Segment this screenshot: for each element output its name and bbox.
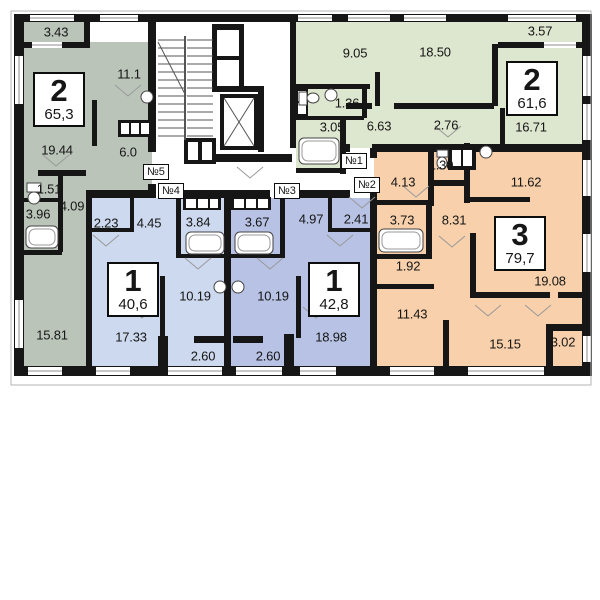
room-area-label: 3.84 (186, 215, 211, 230)
apartment-total-area: 65,3 (44, 106, 73, 123)
apartment-rooms-count: 2 (523, 66, 540, 95)
room-area-label: 3.57 (528, 24, 553, 39)
room-area-label: 16.71 (515, 120, 547, 135)
entrance-tag: №5 (143, 164, 169, 180)
room-area-label: 2.41 (344, 212, 369, 227)
room-area-label: 1.36 (335, 96, 360, 111)
apartment-badge: 1 40,6 (107, 262, 159, 317)
room-area-label: 4.13 (391, 175, 416, 190)
apartment-total-area: 42,8 (319, 296, 348, 313)
room-area-label: 15.81 (36, 328, 68, 343)
room-area-label: 17.33 (115, 330, 147, 345)
room-area-label: 2.23 (94, 216, 119, 231)
room-area-label: 3.43 (44, 25, 69, 40)
apartment-rooms-count: 2 (50, 77, 67, 106)
room-area-label: 18.50 (419, 45, 451, 60)
room-area-label: 4.97 (299, 212, 324, 227)
room-area-label: 1.51 (37, 182, 62, 197)
apartment-badge: 3 79,7 (494, 216, 546, 271)
room-area-label: 3.02 (551, 335, 576, 350)
apartment-total-area: 61,6 (517, 95, 546, 112)
room-area-label: 10.19 (179, 289, 211, 304)
room-area-label: 1.30 (429, 158, 454, 173)
room-area-label: 6.0 (119, 145, 136, 160)
entrance-tag: №2 (354, 177, 380, 193)
room-area-label: 11.62 (511, 175, 542, 190)
entrance-tag: №3 (274, 183, 300, 199)
apartment-badge: 1 42,8 (308, 262, 360, 317)
room-area-label: 3.73 (390, 213, 415, 228)
room-area-label: 3.05 (320, 120, 345, 135)
entrance-tag: №4 (158, 183, 184, 199)
room-area-label: 2.60 (256, 349, 281, 364)
apartment-rooms-count: 1 (325, 267, 342, 296)
room-area-label: 15.15 (489, 337, 521, 352)
room-area-label: 11.1 (117, 67, 141, 82)
apartment-badge: 2 65,3 (33, 72, 85, 127)
apartment-rooms-count: 3 (511, 221, 528, 250)
apartment-rooms-count: 1 (124, 267, 141, 296)
room-area-label: 9.05 (343, 46, 368, 61)
room-area-label: 2.76 (434, 118, 459, 133)
room-area-label: 10.19 (257, 289, 289, 304)
room-area-label: 1.92 (396, 259, 421, 274)
apartment-total-area: 40,6 (118, 296, 147, 313)
room-area-label: 18.98 (315, 330, 347, 345)
room-area-label: 4.45 (137, 216, 162, 231)
room-area-label: 4.09 (60, 199, 85, 214)
room-area-label: 19.44 (41, 143, 73, 158)
room-area-label: 11.43 (397, 307, 428, 322)
apartment-badge: 2 61,6 (506, 61, 558, 116)
room-area-label: 19.08 (534, 274, 566, 289)
entrance-tag: №1 (341, 153, 367, 169)
room-area-label: 2.60 (191, 349, 216, 364)
room-area-label: 6.63 (367, 119, 392, 134)
room-area-label: 3.96 (26, 207, 51, 222)
floor-plan: 3.43 11.1 19.44 6.0 1.51 4.09 3.96 15.81… (0, 0, 600, 600)
apartment-total-area: 79,7 (505, 250, 534, 267)
room-area-label: 3.67 (245, 215, 270, 230)
room-area-label: 8.31 (442, 213, 467, 228)
